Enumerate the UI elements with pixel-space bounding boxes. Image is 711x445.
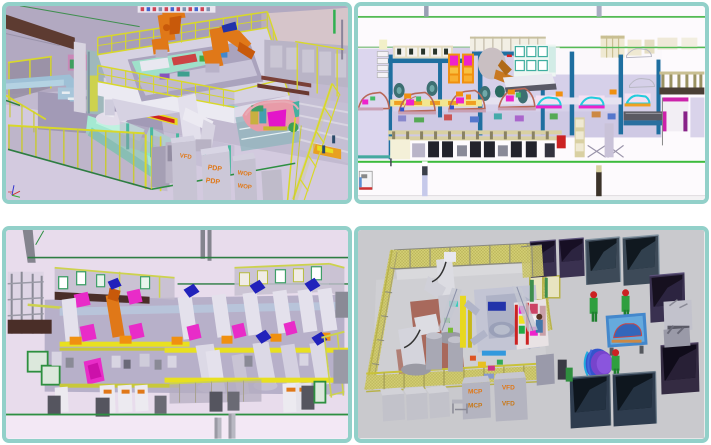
svg-text:VFD: VFD (502, 385, 515, 392)
svg-text:MCP: MCP (468, 403, 483, 410)
svg-text:xy: xy (8, 189, 12, 194)
svg-text:VFD: VFD (502, 401, 515, 408)
svg-text:MCP: MCP (468, 389, 483, 396)
